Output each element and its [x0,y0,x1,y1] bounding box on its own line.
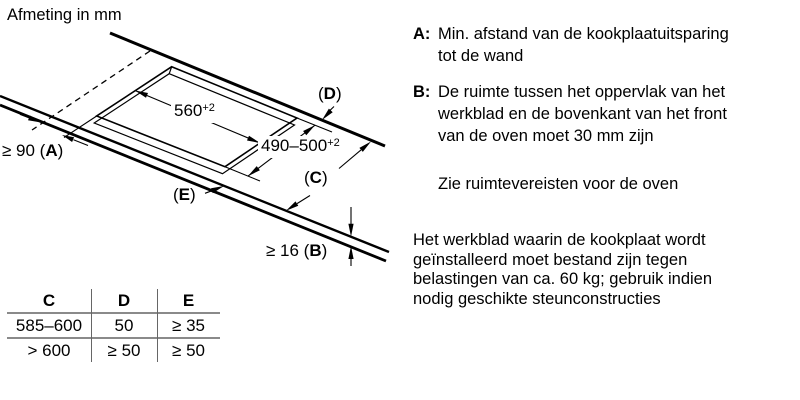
pointer-d-arrow [322,107,334,121]
table-cell: ≥ 50 [91,338,157,363]
table-rule [91,289,92,362]
note-worktop-load: Het werkblad waarin de kookplaat wordt g… [413,231,712,309]
dim-a-label: ≥ 90 (A) [2,141,63,160]
label-e: (E) [173,185,196,204]
legend-key-a: A: [413,23,438,67]
label-c: (C) [304,168,328,187]
table-rule [7,337,220,339]
table-cell: 585–600 [7,313,91,338]
legend-text-a: Min. afstand van de kookplaatuitsparing … [438,23,729,67]
manual-page: { "title": "Afmeting in mm", "diagram": … [0,0,800,400]
worktop-back-edge-line [110,33,385,146]
table-header-e: E [157,288,220,313]
note-oven-space: Zie ruimtevereisten voor de oven [438,173,678,195]
dimension-table: C D E 585–600 50 ≥ 35 > 600 ≥ 50 ≥ 50 [7,288,220,363]
cutout-inner-outline [94,74,294,174]
table-cell: > 600 [7,338,91,363]
table-cell: ≥ 35 [157,313,220,338]
label-d: (D) [318,84,342,103]
legend-item-a: A: Min. afstand van de kookplaatuitspari… [413,23,729,67]
dim-b-label: ≥ 16 (B) [266,241,327,260]
table-header-d: D [91,288,157,313]
table-cell: ≥ 50 [157,338,220,363]
worktop-front-thickness-line [0,105,386,261]
table-rule [7,312,220,314]
table-cell: 50 [91,313,157,338]
dim-560-label: 560+2 [171,101,218,123]
table-header-row: C D E [7,288,220,313]
table-header-c: C [7,288,91,313]
legend-text-b: De ruimte tussen het oppervlak van het w… [438,81,727,147]
table-row: > 600 ≥ 50 ≥ 50 [7,338,220,363]
dim-490-label: 490–500+2 [258,136,343,158]
legend-key-b: B: [413,81,438,147]
table-row: 585–600 50 ≥ 35 [7,313,220,338]
table-rule [157,289,158,362]
wall-dashed-line [32,51,150,130]
legend-item-b: B: De ruimte tussen het oppervlak van he… [413,81,727,147]
